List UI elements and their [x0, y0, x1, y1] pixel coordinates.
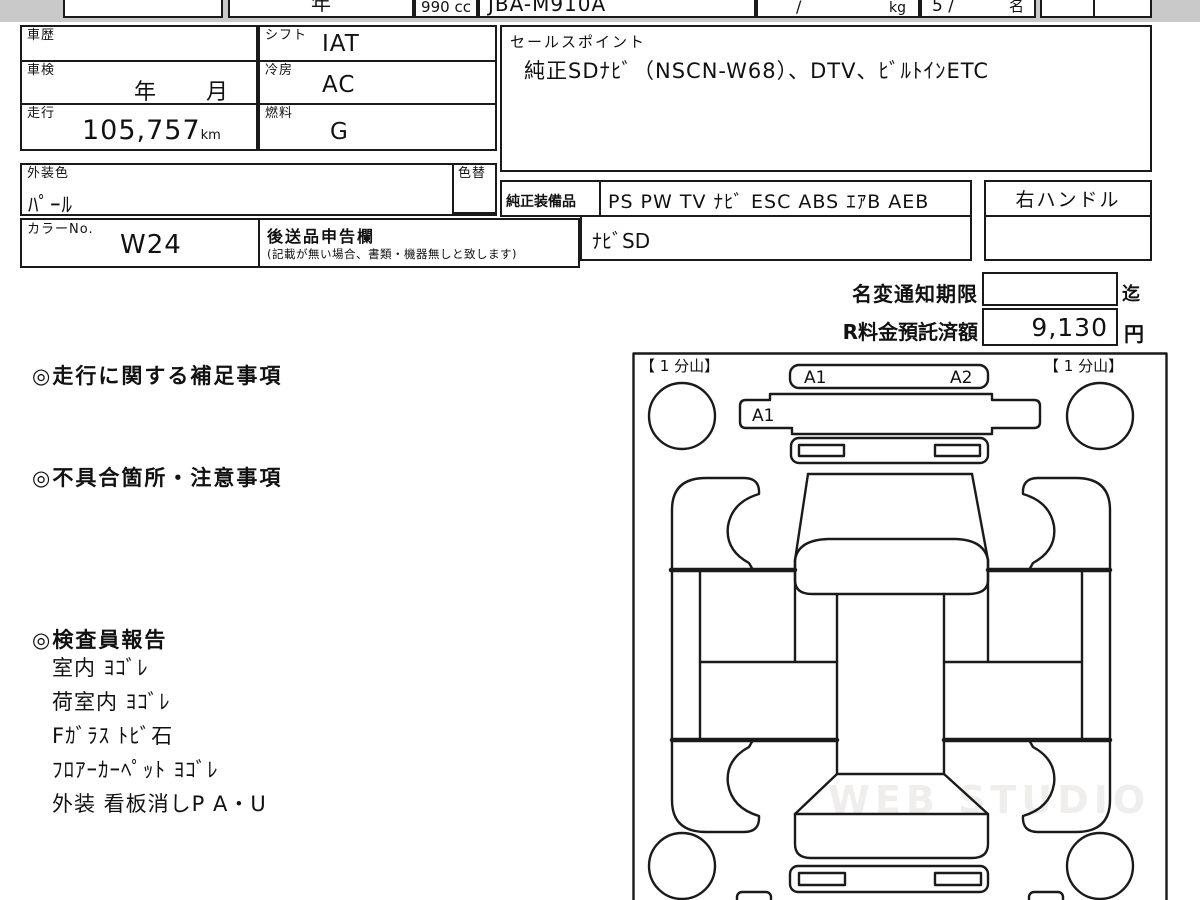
tire-front-left — [649, 383, 715, 449]
top-cell-capacity: 5 / 名 — [920, 0, 1036, 18]
name-change-label: 名変通知期限 — [830, 278, 978, 307]
damage-mark-a2-bumper: A2 — [950, 368, 972, 388]
steering-value: 右ハンドル — [1015, 185, 1120, 212]
bottom-tab-right — [1029, 892, 1063, 900]
model-code-text: JBA-M910A — [488, 0, 606, 16]
exterior-color-cell: 外装色 ﾊﾟｰﾙ — [20, 163, 497, 216]
damage-mark-a1-bumper: A1 — [804, 368, 826, 388]
inspector-item-1: 室内 ﾖｺﾞﾚ — [52, 652, 149, 682]
fender-front-left — [672, 478, 759, 570]
recycle-fee-box: 9,130 — [982, 308, 1118, 346]
exterior-color-label: 外装色 — [27, 167, 69, 181]
rear-bumper-slot-right — [935, 873, 981, 885]
top-cell-weight: / kg — [756, 0, 920, 18]
inspection-cell: 車検 年 月 — [20, 60, 258, 105]
fender-rear-left — [672, 740, 759, 832]
mileage-value-wrap: 105,757km — [82, 115, 221, 146]
aircon-cell: 冷房 AC — [258, 60, 497, 105]
auction-sheet: { "top_row": { "cell_year": "年", "cell_d… — [0, 0, 1200, 900]
fuel-value: G — [330, 119, 349, 145]
displacement-text: 990 cc — [421, 0, 471, 16]
rear-bumper-slot-left — [799, 873, 845, 885]
steering-cell: 右ハンドル — [984, 180, 1152, 217]
equipment-row: 純正装備品 PS PW TV ﾅﾋﾞ ESC ABS ｴｱB AEB — [500, 180, 972, 217]
top-cell-model-code: JBA-M910A — [478, 0, 756, 18]
inspection-label: 車検 — [27, 64, 55, 78]
tire-label-front-left: 【 1 分山】 — [640, 357, 719, 375]
diagram-frame — [634, 354, 1167, 900]
equipment-label: 純正装備品 — [506, 191, 576, 211]
equipment-values: PS PW TV ﾅﾋﾞ ESC ABS ｴｱB AEB — [608, 187, 929, 214]
weight-slash-text: / — [796, 0, 801, 16]
inspector-heading: ◎検査員報告 — [32, 624, 167, 654]
inspection-value: 年 月 — [134, 74, 242, 106]
cabin-sides — [837, 594, 944, 774]
top-cell-small-1 — [1040, 0, 1095, 18]
color-change-cell: 色替 — [452, 163, 497, 214]
recycle-fee-value: 9,130 — [1031, 313, 1108, 342]
shift-value: IAT — [322, 31, 360, 57]
tire-rear-right — [1067, 833, 1133, 899]
top-clipped-row: 年 990 cc JBA-M910A / kg 5 / 名 — [0, 0, 1200, 22]
windshield-sides — [795, 474, 988, 560]
rear-bumper — [790, 866, 988, 892]
color-no-cell: カラーNo. W24 — [20, 218, 260, 268]
front-panel-bar — [740, 394, 1040, 434]
color-no-value: W24 — [120, 230, 182, 260]
tire-rear-left — [649, 833, 715, 899]
later-goods-label: 後送品申告欄 — [267, 223, 375, 247]
wiper-left — [799, 445, 844, 456]
body-side-lines — [672, 570, 1110, 740]
later-goods-cell: 後送品申告欄 (記載が無い場合、書類・機器無しと致します) — [258, 218, 580, 268]
exterior-color-value: ﾊﾟｰﾙ — [28, 189, 73, 219]
capacity-text: 5 / — [932, 0, 954, 16]
tire-front-right — [1067, 383, 1133, 449]
mileage-value: 105,757 — [82, 115, 201, 146]
rear-panel — [795, 814, 988, 858]
cowl-panel — [791, 438, 988, 463]
fuel-cell: 燃料 G — [258, 103, 497, 151]
top-cell-small-2 — [1093, 0, 1152, 18]
mileage-label: 走行 — [27, 107, 55, 121]
sales-point-label: セールスポイント — [510, 31, 646, 52]
mileage-cell: 走行 105,757km — [20, 103, 258, 151]
color-change-label: 色替 — [458, 167, 486, 181]
mileage-remarks-heading: ◎走行に関する補足事項 — [32, 360, 282, 390]
fender-front-right — [1023, 478, 1110, 570]
inspector-item-3: Fｶﾞﾗｽ ﾄﾋﾞ石 — [52, 720, 173, 750]
history-cell: 車歴 — [20, 25, 258, 62]
pillar-lines — [795, 560, 988, 662]
equipment-divider — [599, 182, 601, 215]
name-change-input-box — [982, 272, 1118, 306]
roof-panel — [795, 539, 988, 594]
rear-window-sides — [795, 774, 988, 814]
recycle-fee-unit: 円 — [1124, 318, 1144, 347]
fender-rear-right — [1023, 740, 1110, 832]
color-no-label: カラーNo. — [27, 223, 94, 237]
car-diagram-svg: 【 1 分山】 【 1 分山】 A1 A2 A1 — [632, 352, 1168, 900]
fuel-label: 燃料 — [265, 107, 293, 121]
shift-label: シフト — [265, 29, 307, 43]
nav-type-cell: ﾅﾋﾞSD — [580, 215, 972, 261]
bottom-tab-left — [737, 892, 771, 900]
later-goods-note: (記載が無い場合、書類・機器無しと致します) — [267, 246, 517, 262]
car-diagram-panel: WEB STUDIO PRO — [632, 352, 1168, 900]
inspector-item-2: 荷室内 ﾖｺﾞﾚ — [52, 686, 171, 716]
name-change-suffix: 迄 — [1122, 280, 1140, 306]
nav-type-value: ﾅﾋﾞSD — [592, 225, 650, 254]
top-cell-empty — [63, 0, 223, 18]
shoulder-lines — [671, 570, 1110, 740]
sales-point-text: 純正SDﾅﾋﾞ（NSCN-W68）、DTV、ﾋﾞﾙﾄｲﾝETC — [524, 55, 989, 85]
recycle-fee-label: R料金預託済額 — [822, 316, 978, 345]
sales-point-panel: セールスポイント 純正SDﾅﾋﾞ（NSCN-W68）、DTV、ﾋﾞﾙﾄｲﾝETC — [500, 25, 1152, 172]
weight-unit-text: kg — [889, 0, 906, 16]
shift-cell: シフト IAT — [258, 25, 497, 62]
steering-empty-cell — [984, 215, 1152, 261]
year-suffix-text: 年 — [311, 0, 331, 16]
tire-label-front-right: 【 1 分山】 — [1044, 357, 1123, 375]
top-cell-displacement: 990 cc — [414, 0, 478, 18]
inspector-item-5: 外装 看板消しP A・U — [52, 788, 267, 818]
history-label: 車歴 — [27, 29, 55, 43]
top-cell-year: 年 — [228, 0, 414, 18]
capacity-unit-text: 名 — [1009, 0, 1024, 16]
mileage-unit: km — [201, 128, 221, 143]
aircon-label: 冷房 — [265, 64, 293, 78]
aircon-value: AC — [322, 72, 355, 98]
wiper-right — [935, 445, 980, 456]
inspector-item-4: ﾌﾛｱｰｶｰﾍﾟｯﾄ ﾖｺﾞﾚ — [52, 754, 219, 784]
damage-mark-a1-panel: A1 — [752, 406, 774, 426]
defects-heading: ◎不具合箇所・注意事項 — [32, 462, 282, 492]
